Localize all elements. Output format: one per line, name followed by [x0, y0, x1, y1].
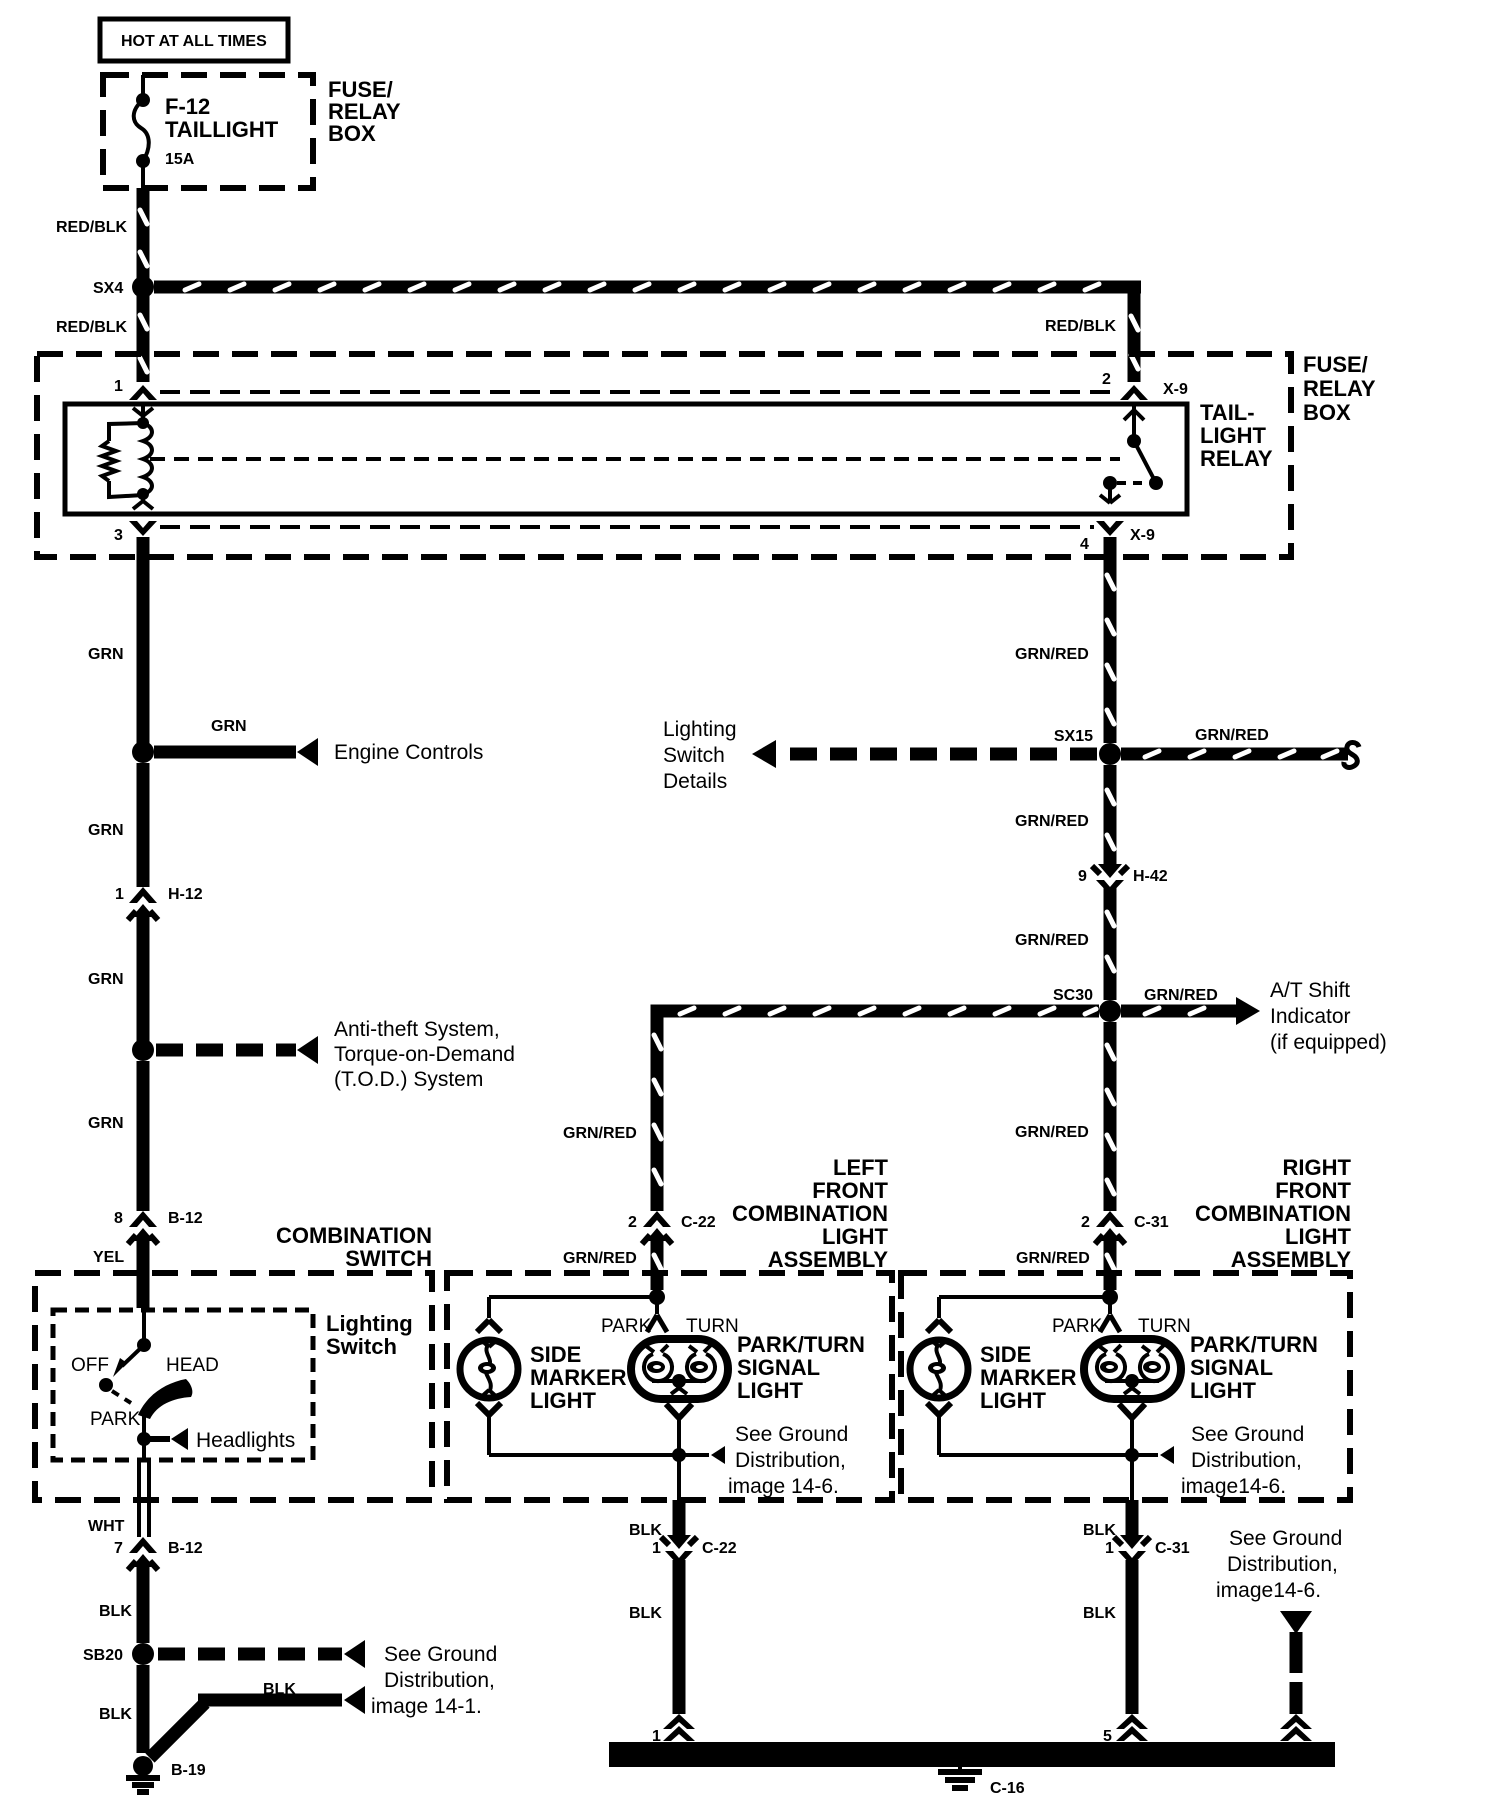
svg-text:B-12: B-12 [168, 1210, 203, 1227]
svg-text:GRN/RED: GRN/RED [563, 1250, 637, 1267]
svg-text:GRN: GRN [211, 718, 247, 735]
svg-text:RELAY: RELAY [1200, 446, 1273, 471]
svg-text:H-42: H-42 [1133, 868, 1168, 885]
svg-text:SX4: SX4 [93, 280, 123, 297]
svg-text:Headlights: Headlights [196, 1429, 295, 1452]
svg-text:Indicator: Indicator [1270, 1005, 1351, 1028]
svg-text:SIGNAL: SIGNAL [737, 1355, 820, 1380]
svg-text:TURN: TURN [1138, 1316, 1191, 1337]
svg-text:PARK: PARK [1052, 1316, 1103, 1337]
svg-text:COMBINATION: COMBINATION [276, 1223, 432, 1248]
svg-text:LIGHT: LIGHT [1200, 423, 1267, 448]
svg-text:BOX: BOX [328, 121, 376, 146]
svg-text:TURN: TURN [686, 1316, 739, 1337]
svg-text:BLK: BLK [263, 1681, 296, 1698]
svg-text:Distribution,: Distribution, [1227, 1553, 1338, 1576]
svg-text:X-9: X-9 [1130, 527, 1155, 544]
svg-text:RIGHT: RIGHT [1283, 1155, 1352, 1180]
svg-text:Anti-theft System,: Anti-theft System, [334, 1018, 500, 1041]
svg-text:GRN/RED: GRN/RED [1195, 727, 1269, 744]
svg-text:LIGHT: LIGHT [980, 1388, 1047, 1413]
svg-text:X-9: X-9 [1163, 381, 1188, 398]
svg-text:LIGHT: LIGHT [1285, 1224, 1352, 1249]
svg-text:COMBINATION: COMBINATION [1195, 1201, 1351, 1226]
svg-text:RED/BLK: RED/BLK [1045, 318, 1117, 335]
svg-text:ASSEMBLY: ASSEMBLY [768, 1247, 889, 1272]
svg-text:BLK: BLK [99, 1706, 132, 1723]
svg-text:B-19: B-19 [171, 1762, 206, 1779]
svg-text:15A: 15A [165, 151, 195, 168]
svg-text:LIGHT: LIGHT [822, 1224, 889, 1249]
svg-text:BLK: BLK [99, 1603, 132, 1620]
svg-text:PARK: PARK [601, 1316, 652, 1337]
svg-text:BLK: BLK [629, 1522, 662, 1539]
svg-text:GRN: GRN [88, 971, 124, 988]
svg-text:GRN: GRN [88, 1115, 124, 1132]
svg-text:TAIL-: TAIL- [1200, 400, 1255, 425]
svg-text:C-22: C-22 [702, 1540, 737, 1557]
svg-text:C-22: C-22 [681, 1214, 716, 1231]
svg-text:LIGHT: LIGHT [1190, 1378, 1257, 1403]
svg-text:8: 8 [114, 1210, 123, 1227]
svg-text:1: 1 [652, 1540, 661, 1557]
svg-text:image14-6.: image14-6. [1216, 1579, 1321, 1602]
svg-text:PARK: PARK [90, 1409, 141, 1430]
svg-text:F-12: F-12 [165, 94, 210, 119]
svg-text:BLK: BLK [629, 1605, 662, 1622]
svg-text:GRN/RED: GRN/RED [1015, 646, 1089, 663]
svg-text:image 14-6.: image 14-6. [728, 1475, 839, 1498]
svg-text:MARKER: MARKER [530, 1365, 627, 1390]
svg-text:SX15: SX15 [1054, 728, 1093, 745]
svg-text:See Ground: See Ground [1229, 1527, 1342, 1550]
svg-text:A/T Shift: A/T Shift [1270, 979, 1350, 1002]
svg-text:Torque-on-Demand: Torque-on-Demand [334, 1043, 515, 1066]
svg-text:Engine Controls: Engine Controls [334, 741, 483, 764]
svg-text:(T.O.D.) System: (T.O.D.) System [334, 1068, 483, 1091]
svg-text:Switch: Switch [663, 744, 725, 767]
svg-text:Lighting: Lighting [326, 1311, 413, 1336]
svg-text:SWITCH: SWITCH [345, 1246, 432, 1271]
svg-text:C-16: C-16 [990, 1780, 1025, 1797]
svg-text:BLK: BLK [1083, 1605, 1116, 1622]
svg-text:PARK/TURN: PARK/TURN [1190, 1332, 1318, 1357]
svg-text:Distribution,: Distribution, [384, 1669, 495, 1692]
svg-text:ASSEMBLY: ASSEMBLY [1231, 1247, 1352, 1272]
svg-text:WHT: WHT [88, 1518, 125, 1535]
svg-text:image 14-1.: image 14-1. [371, 1695, 482, 1718]
svg-text:LIGHT: LIGHT [737, 1378, 804, 1403]
svg-text:C-31: C-31 [1134, 1214, 1169, 1231]
svg-text:Switch: Switch [326, 1334, 397, 1359]
svg-text:SIDE: SIDE [530, 1342, 581, 1367]
svg-text:1: 1 [114, 378, 123, 395]
svg-text:SB20: SB20 [83, 1647, 123, 1664]
svg-text:FRONT: FRONT [1275, 1178, 1351, 1203]
svg-text:BOX: BOX [1303, 400, 1351, 425]
svg-text:PARK/TURN: PARK/TURN [737, 1332, 865, 1357]
svg-text:GRN/RED: GRN/RED [1015, 1124, 1089, 1141]
svg-text:OFF: OFF [71, 1355, 109, 1376]
svg-text:H-12: H-12 [168, 886, 203, 903]
svg-text:Distribution,: Distribution, [1191, 1449, 1302, 1472]
svg-text:GRN: GRN [88, 822, 124, 839]
svg-text:LEFT: LEFT [833, 1155, 889, 1180]
svg-text:FUSE/: FUSE/ [1303, 352, 1368, 377]
svg-text:2: 2 [1081, 1214, 1090, 1231]
svg-text:GRN/RED: GRN/RED [1015, 932, 1089, 949]
svg-text:FRONT: FRONT [812, 1178, 888, 1203]
svg-text:See Ground: See Ground [1191, 1423, 1304, 1446]
svg-text:HOT AT ALL TIMES: HOT AT ALL TIMES [121, 33, 267, 50]
svg-text:GRN/RED: GRN/RED [1015, 813, 1089, 830]
svg-text:Distribution,: Distribution, [735, 1449, 846, 1472]
svg-text:RED/BLK: RED/BLK [56, 319, 128, 336]
svg-text:TAILLIGHT: TAILLIGHT [165, 117, 279, 142]
svg-text:SIGNAL: SIGNAL [1190, 1355, 1273, 1380]
svg-text:MARKER: MARKER [980, 1365, 1077, 1390]
svg-text:C-31: C-31 [1155, 1540, 1190, 1557]
svg-text:LIGHT: LIGHT [530, 1388, 597, 1413]
svg-text:GRN/RED: GRN/RED [1016, 1250, 1090, 1267]
svg-text:GRN/RED: GRN/RED [563, 1125, 637, 1142]
svg-text:BLK: BLK [1083, 1522, 1116, 1539]
svg-text:RELAY: RELAY [1303, 376, 1376, 401]
svg-text:1: 1 [1105, 1540, 1114, 1557]
svg-text:2: 2 [628, 1214, 637, 1231]
svg-text:Lighting: Lighting [663, 718, 737, 741]
svg-text:3: 3 [114, 527, 123, 544]
svg-text:4: 4 [1080, 536, 1089, 553]
svg-text:SC30: SC30 [1053, 987, 1093, 1004]
svg-text:HEAD: HEAD [166, 1355, 219, 1376]
svg-text:Details: Details [663, 770, 727, 793]
svg-text:YEL: YEL [93, 1249, 124, 1266]
svg-text:B-12: B-12 [168, 1540, 203, 1557]
svg-text:COMBINATION: COMBINATION [732, 1201, 888, 1226]
svg-text:GRN/RED: GRN/RED [1144, 987, 1218, 1004]
svg-text:(if equipped): (if equipped) [1270, 1031, 1387, 1054]
svg-text:See Ground: See Ground [384, 1643, 497, 1666]
svg-text:1: 1 [115, 886, 124, 903]
svg-text:See Ground: See Ground [735, 1423, 848, 1446]
svg-text:9: 9 [1078, 868, 1087, 885]
svg-text:SIDE: SIDE [980, 1342, 1031, 1367]
svg-text:GRN: GRN [88, 646, 124, 663]
svg-text:RED/BLK: RED/BLK [56, 219, 128, 236]
svg-text:2: 2 [1102, 371, 1111, 388]
svg-text:7: 7 [114, 1540, 123, 1557]
svg-text:image14-6.: image14-6. [1181, 1475, 1286, 1498]
